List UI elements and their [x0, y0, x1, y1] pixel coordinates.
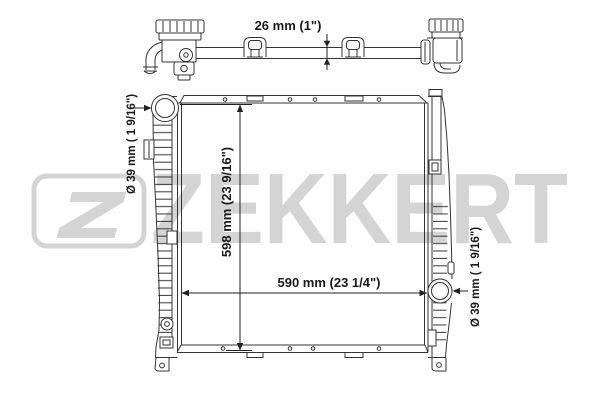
- width-dimension-label: 590 mm (23 1/4"): [278, 275, 381, 290]
- arrowhead-up: [324, 59, 330, 65]
- left-tank-clip: [167, 231, 177, 244]
- zekkert-wordmark: ZEKKERT: [151, 153, 568, 265]
- width-dimension: 590 mm (23 1/4"): [182, 275, 428, 296]
- right-tank-cap: [429, 90, 442, 97]
- arrowhead-right: [144, 105, 152, 111]
- right-tank-fitting: [428, 330, 436, 346]
- right-foot: [432, 358, 446, 371]
- top-tab: [247, 96, 263, 101]
- arrowhead-left: [453, 288, 461, 294]
- top-view-mounting-clip-right: [342, 38, 364, 58]
- top-view-outlet-fitting: [421, 19, 463, 73]
- radiator-technical-drawing: ZEKKERT: [0, 0, 600, 400]
- left-foot: [155, 358, 169, 371]
- thickness-dimension-label: 26 mm (1"): [255, 18, 322, 33]
- right-tank-tab: [448, 262, 454, 274]
- height-dimension-label: 598 mm (23 9/16"): [219, 147, 234, 257]
- inlet-port: [152, 95, 179, 122]
- arrowhead-down: [324, 41, 330, 47]
- top-view-cap-bolt: [180, 49, 193, 62]
- arrowhead-down: [237, 343, 243, 351]
- top-tab: [345, 96, 363, 101]
- right-tank-hatching: [433, 203, 448, 345]
- zekkert-watermark: ZEKKERT: [34, 153, 568, 265]
- drain-plug: [161, 318, 173, 330]
- core-top-strip: [177, 96, 428, 104]
- right-tank-clip: [429, 160, 441, 174]
- bottom-tab: [345, 353, 363, 358]
- arrowhead-up: [237, 105, 243, 113]
- core-bottom-strip: [177, 345, 428, 358]
- top-view-mounting-clip-left: [244, 38, 266, 58]
- left-tank-fitting: [160, 337, 173, 348]
- outlet-diameter-label: Ø 39 mm ( 1 9/16"): [470, 227, 482, 327]
- radiator-top-view: 26 mm (1"): [143, 18, 463, 80]
- top-view-tube: [196, 48, 421, 59]
- bottom-tab: [247, 353, 263, 358]
- zekkert-logo-z-icon: [57, 192, 126, 238]
- top-view-inlet-fitting: [143, 20, 204, 80]
- inlet-diameter-label: Ø 39 mm ( 1 9/16"): [126, 94, 138, 194]
- arrowhead-right: [420, 290, 428, 296]
- drawing-canvas: ZEKKERT: [0, 0, 600, 400]
- arrowhead-left: [182, 290, 190, 296]
- outlet-port: [428, 279, 452, 303]
